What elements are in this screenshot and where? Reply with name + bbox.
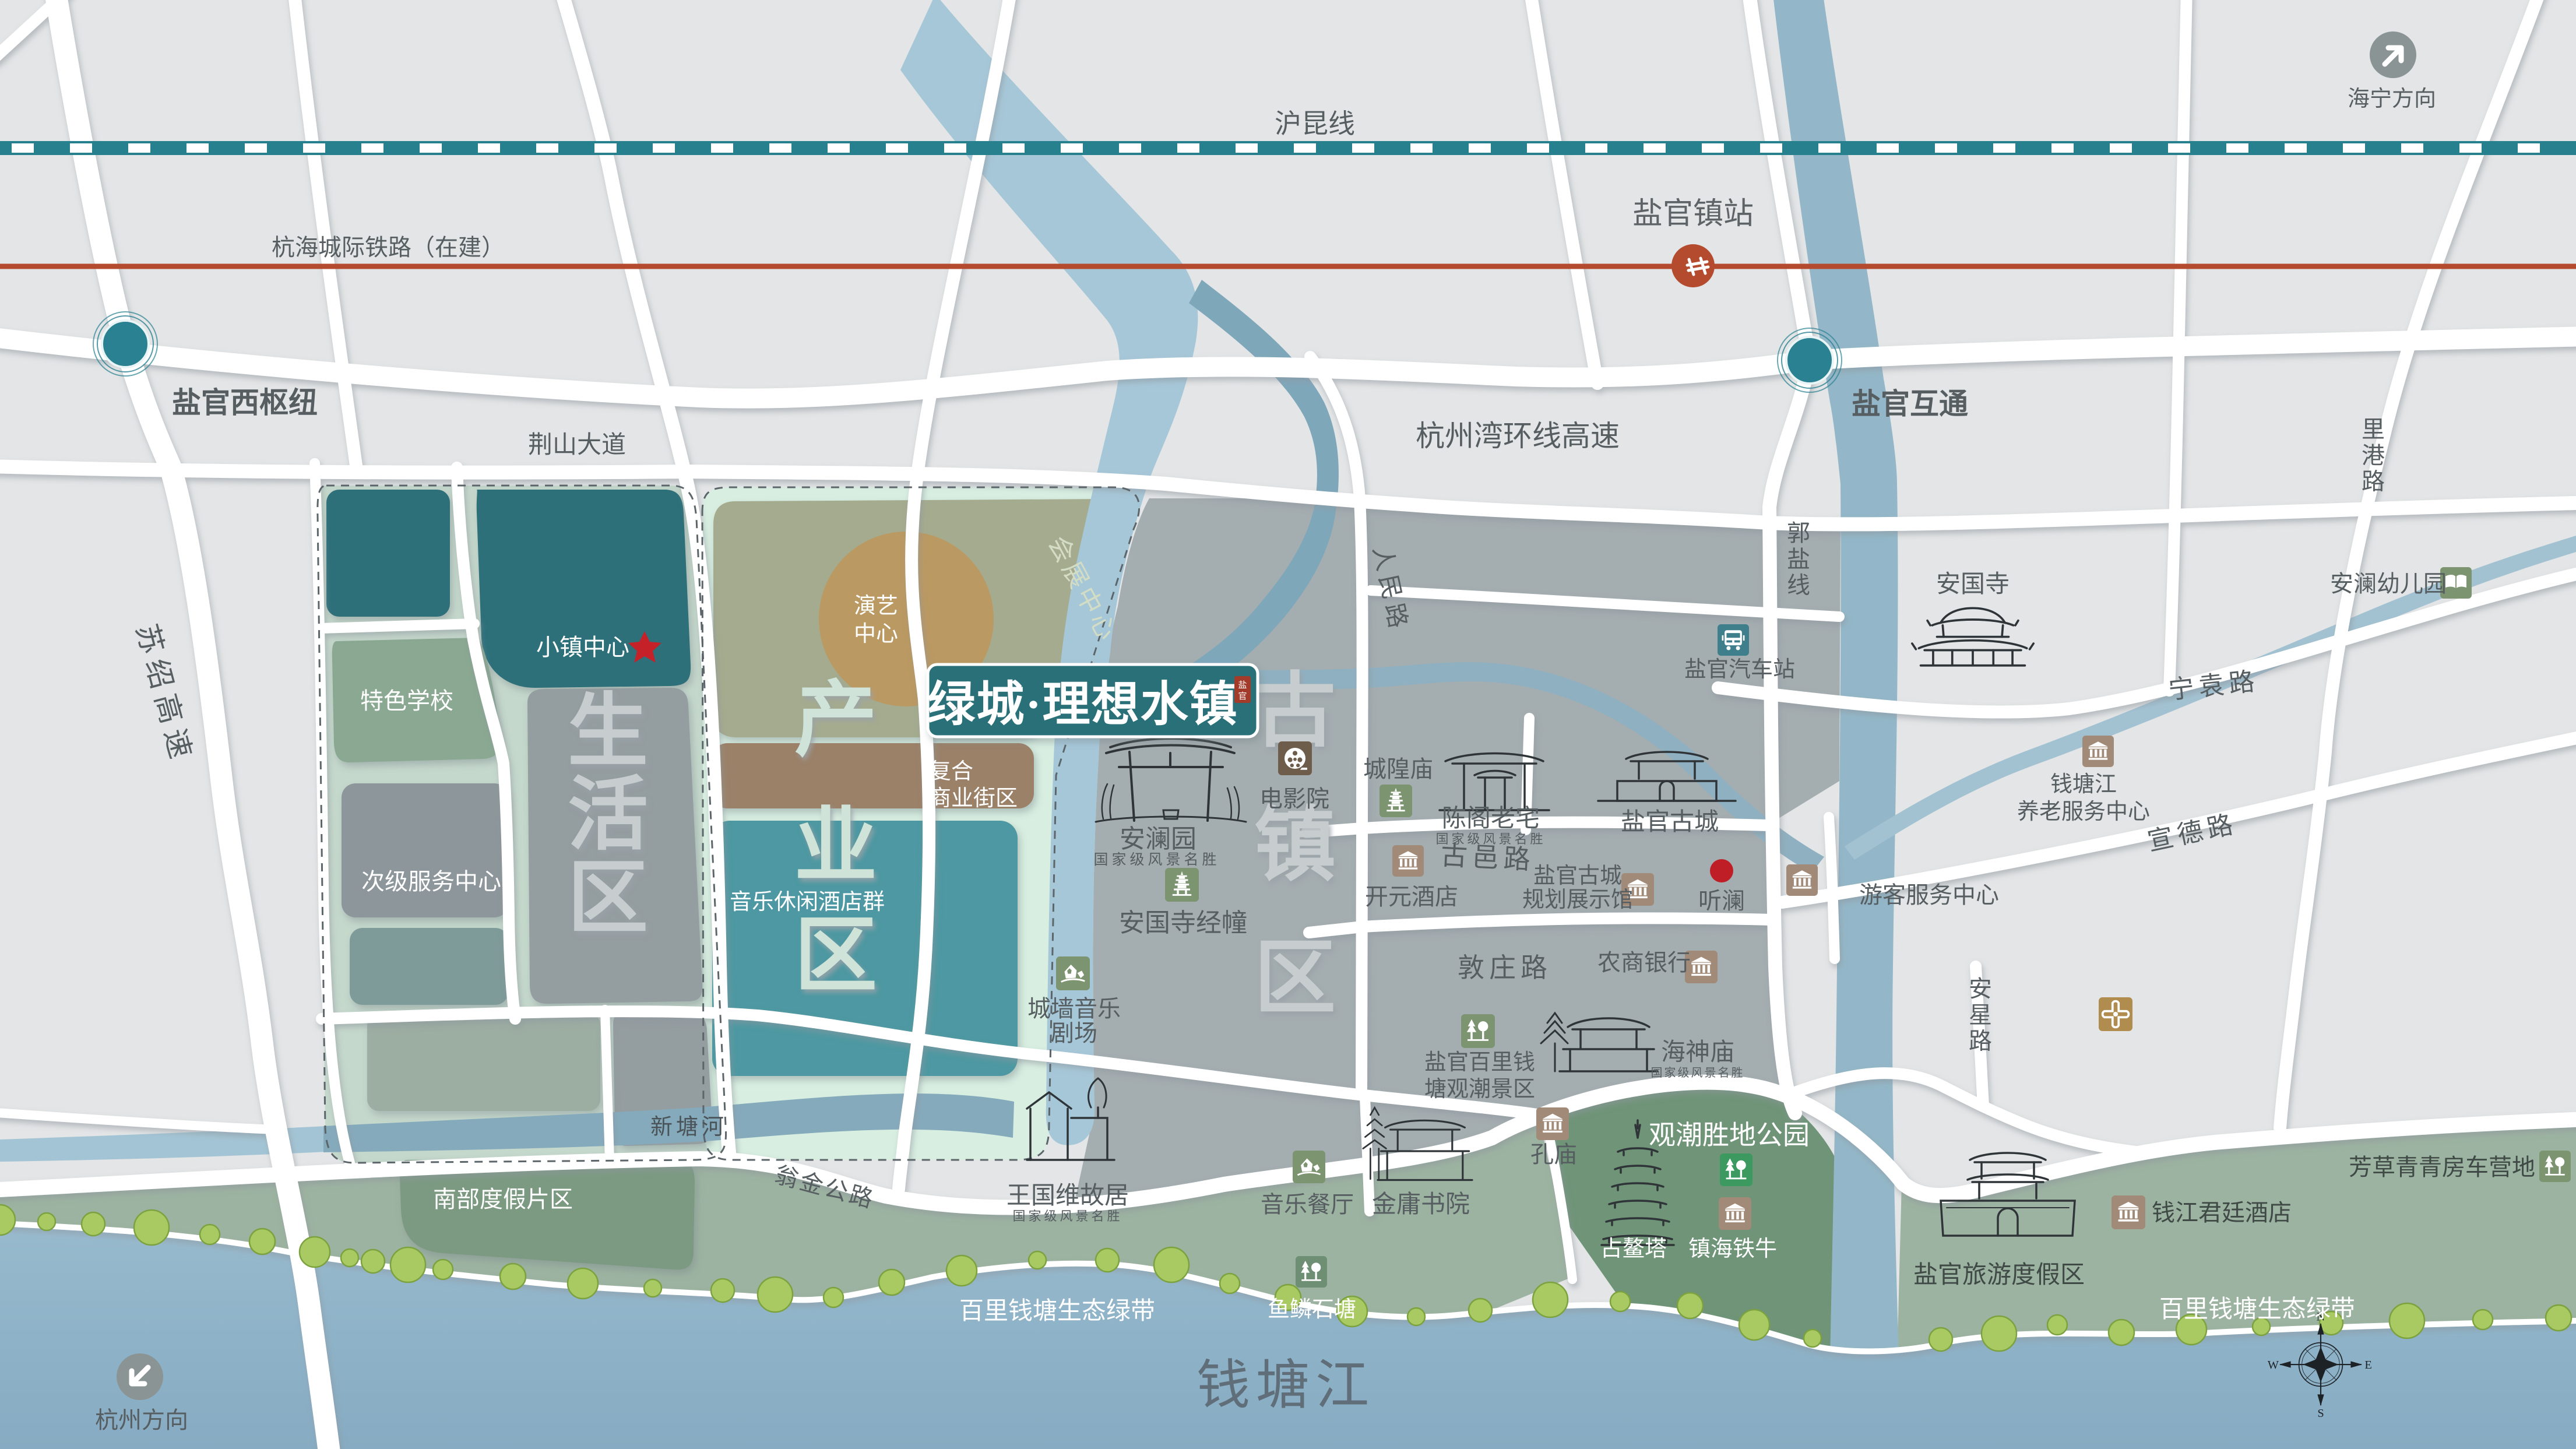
svg-text:开元酒店: 开元酒店 — [1365, 884, 1458, 910]
svg-text:新塘河: 新塘河 — [650, 1115, 727, 1139]
svg-text:郭: 郭 — [1787, 520, 1810, 546]
svg-text:区: 区 — [1254, 934, 1336, 1024]
svg-text:观潮胜地公园: 观潮胜地公园 — [1649, 1120, 1810, 1150]
svg-text:路: 路 — [1969, 1029, 1992, 1054]
svg-text:次级服务中心: 次级服务中心 — [361, 869, 501, 895]
svg-text:钱塘江: 钱塘江 — [1196, 1356, 1375, 1415]
svg-text:线: 线 — [1787, 573, 1810, 599]
svg-text:电影院: 电影院 — [1259, 786, 1329, 812]
svg-text:E: E — [2364, 1359, 2371, 1371]
svg-text:星: 星 — [1969, 1003, 1992, 1028]
svg-text:听澜: 听澜 — [1698, 888, 1745, 914]
svg-text:安澜园: 安澜园 — [1120, 825, 1196, 853]
svg-text:安国寺: 安国寺 — [1936, 570, 2010, 597]
svg-text:陈阁老宅: 陈阁老宅 — [1442, 804, 1540, 832]
svg-text:芳草青青房车营地: 芳草青青房车营地 — [2349, 1155, 2535, 1180]
svg-text:活: 活 — [568, 771, 648, 860]
svg-text:绿城·理想水镇: 绿城·理想水镇 — [927, 678, 1238, 731]
svg-text:W: W — [2268, 1359, 2279, 1371]
svg-text:区: 区 — [568, 854, 648, 943]
svg-text:里: 里 — [2362, 417, 2385, 442]
svg-text:盐官汽车站: 盐官汽车站 — [1684, 657, 1795, 682]
svg-text:特色学校: 特色学校 — [360, 688, 453, 714]
svg-text:S: S — [2317, 1407, 2324, 1420]
svg-text:产: 产 — [794, 674, 877, 766]
svg-text:盐官百里钱: 盐官百里钱 — [1424, 1050, 1535, 1075]
svg-text:盐官互通: 盐官互通 — [1852, 388, 1968, 420]
svg-text:剧场: 剧场 — [1051, 1021, 1097, 1046]
svg-text:盐官旅游度假区: 盐官旅游度假区 — [1913, 1261, 2085, 1288]
svg-text:区: 区 — [794, 910, 877, 1002]
svg-text:杭海城际铁路（在建）: 杭海城际铁路（在建） — [272, 235, 505, 261]
svg-text:盐: 盐 — [1787, 547, 1810, 572]
svg-text:国家级风景名胜: 国家级风景名胜 — [1093, 852, 1220, 868]
svg-text:商业街区: 商业街区 — [929, 786, 1018, 811]
svg-text:塘观潮景区: 塘观潮景区 — [1424, 1077, 1535, 1102]
svg-text:荆山大道: 荆山大道 — [528, 431, 626, 458]
svg-text:王国维故居: 王国维故居 — [1007, 1181, 1129, 1209]
svg-text:杭州方向: 杭州方向 — [95, 1408, 188, 1433]
svg-text:盐: 盐 — [1238, 680, 1247, 690]
svg-text:钱江君廷酒店: 钱江君廷酒店 — [2152, 1200, 2292, 1226]
svg-text:占鳌塔: 占鳌塔 — [1600, 1237, 1667, 1261]
svg-text:安国寺经幢: 安国寺经幢 — [1119, 909, 1247, 937]
svg-text:音乐休闲酒店群: 音乐休闲酒店群 — [730, 890, 885, 915]
svg-text:鱼鳞石塘: 鱼鳞石塘 — [1268, 1297, 1356, 1322]
svg-text:国家级风景名胜: 国家级风景名胜 — [1012, 1209, 1122, 1223]
svg-text:海宁方向: 海宁方向 — [2348, 87, 2436, 111]
svg-text:规划展示馆: 规划展示馆 — [1522, 888, 1633, 912]
svg-text:复合: 复合 — [929, 759, 973, 784]
svg-text:中心: 中心 — [854, 622, 898, 646]
svg-text:港: 港 — [2362, 443, 2385, 469]
svg-text:城墙音乐: 城墙音乐 — [1027, 996, 1121, 1022]
svg-text:国家级风景名胜: 国家级风景名胜 — [1651, 1066, 1745, 1079]
svg-text:盐官古城: 盐官古城 — [1533, 864, 1622, 888]
svg-text:音乐餐厅: 音乐餐厅 — [1261, 1192, 1354, 1218]
svg-text:百里钱塘生态绿带: 百里钱塘生态绿带 — [959, 1297, 1155, 1324]
svg-text:生: 生 — [568, 687, 648, 776]
svg-text:孔庙: 孔庙 — [1530, 1142, 1577, 1167]
svg-text:小镇中心: 小镇中心 — [536, 635, 629, 660]
svg-text:城隍庙: 城隍庙 — [1363, 757, 1433, 782]
svg-text:安: 安 — [1969, 976, 1992, 1002]
svg-text:路: 路 — [2362, 469, 2385, 495]
svg-text:海神庙: 海神庙 — [1661, 1038, 1734, 1065]
svg-text:演艺: 演艺 — [854, 594, 898, 618]
svg-text:业: 业 — [794, 800, 877, 892]
svg-text:古邑路: 古邑路 — [1440, 840, 1536, 875]
svg-text:安澜幼儿园: 安澜幼儿园 — [2330, 571, 2447, 597]
svg-text:南部度假片区: 南部度假片区 — [433, 1187, 573, 1212]
svg-text:镇: 镇 — [1254, 801, 1336, 891]
svg-text:盐官镇站: 盐官镇站 — [1632, 197, 1754, 231]
svg-text:游客服务中心: 游客服务中心 — [1859, 882, 1999, 908]
svg-text:盐官西枢纽: 盐官西枢纽 — [172, 386, 318, 419]
svg-text:金庸书院: 金庸书院 — [1372, 1190, 1470, 1218]
svg-text:镇海铁牛: 镇海铁牛 — [1688, 1237, 1777, 1261]
svg-text:钱塘江: 钱塘江 — [2050, 772, 2117, 797]
svg-text:盐官古城: 盐官古城 — [1621, 808, 1719, 835]
svg-text:沪昆线: 沪昆线 — [1275, 108, 1355, 139]
svg-text:养老服务中心: 养老服务中心 — [2017, 800, 2150, 824]
svg-text:农商银行: 农商银行 — [1597, 950, 1691, 976]
svg-text:杭州湾环线高速: 杭州湾环线高速 — [1416, 420, 1620, 452]
svg-text:敦庄路: 敦庄路 — [1458, 952, 1552, 983]
svg-text:百里钱塘生态绿带: 百里钱塘生态绿带 — [2159, 1295, 2355, 1323]
svg-text:官: 官 — [1238, 691, 1247, 701]
